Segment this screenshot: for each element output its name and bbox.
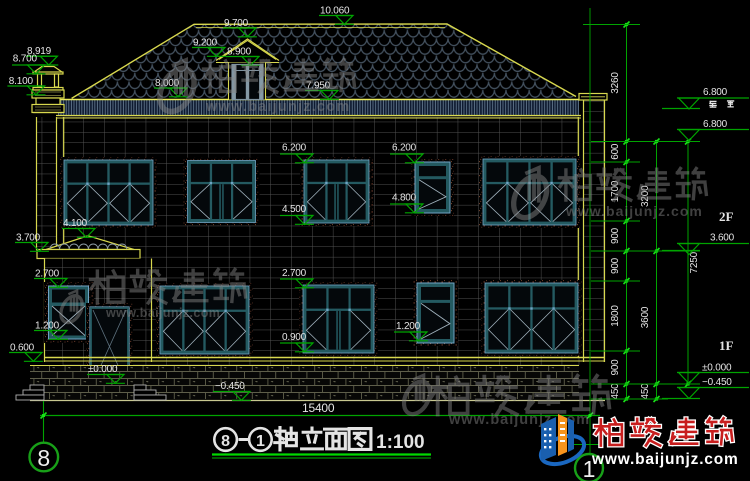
svg-text:www.baijunjz.com: www.baijunjz.com bbox=[591, 451, 739, 468]
svg-text:15400: 15400 bbox=[302, 401, 335, 415]
svg-text:600: 600 bbox=[610, 143, 621, 160]
svg-text:450: 450 bbox=[640, 383, 651, 400]
svg-text:6.200: 6.200 bbox=[282, 143, 307, 154]
svg-text:2F: 2F bbox=[719, 209, 734, 224]
svg-text:7250: 7250 bbox=[689, 251, 700, 273]
svg-text:900: 900 bbox=[610, 257, 621, 274]
svg-text:3600: 3600 bbox=[640, 306, 651, 328]
svg-text:−0.450: −0.450 bbox=[702, 377, 732, 388]
svg-text:1: 1 bbox=[256, 433, 265, 450]
svg-text:0.900: 0.900 bbox=[282, 332, 307, 343]
svg-text:www.baijunjz.com: www.baijunjz.com bbox=[565, 203, 703, 219]
svg-text:6.800: 6.800 bbox=[703, 119, 728, 130]
svg-text:4.800: 4.800 bbox=[392, 193, 417, 204]
svg-text:6.800: 6.800 bbox=[703, 87, 728, 98]
svg-text:8: 8 bbox=[37, 445, 50, 471]
svg-text:2.700: 2.700 bbox=[282, 268, 307, 279]
svg-text:www.baijunjz.com: www.baijunjz.com bbox=[105, 306, 220, 320]
svg-text:6.200: 6.200 bbox=[392, 143, 417, 154]
svg-text:1.200: 1.200 bbox=[396, 321, 421, 332]
svg-text:450: 450 bbox=[610, 383, 621, 400]
svg-text:1800: 1800 bbox=[610, 305, 621, 327]
svg-text:3260: 3260 bbox=[610, 72, 621, 94]
svg-text:www.baijunjz.com: www.baijunjz.com bbox=[205, 99, 350, 115]
svg-text:4.500: 4.500 bbox=[282, 204, 307, 215]
svg-text:1:100: 1:100 bbox=[376, 432, 425, 453]
svg-text:900: 900 bbox=[610, 227, 621, 244]
svg-text:8: 8 bbox=[221, 433, 230, 450]
svg-text:8.700: 8.700 bbox=[13, 54, 38, 65]
svg-text:1F: 1F bbox=[719, 338, 734, 353]
svg-text:900: 900 bbox=[610, 359, 621, 376]
svg-text:−0.450: −0.450 bbox=[215, 381, 245, 392]
svg-text:±0.000: ±0.000 bbox=[88, 364, 118, 375]
svg-text:3.600: 3.600 bbox=[710, 233, 735, 244]
svg-text:4.100: 4.100 bbox=[63, 218, 88, 229]
